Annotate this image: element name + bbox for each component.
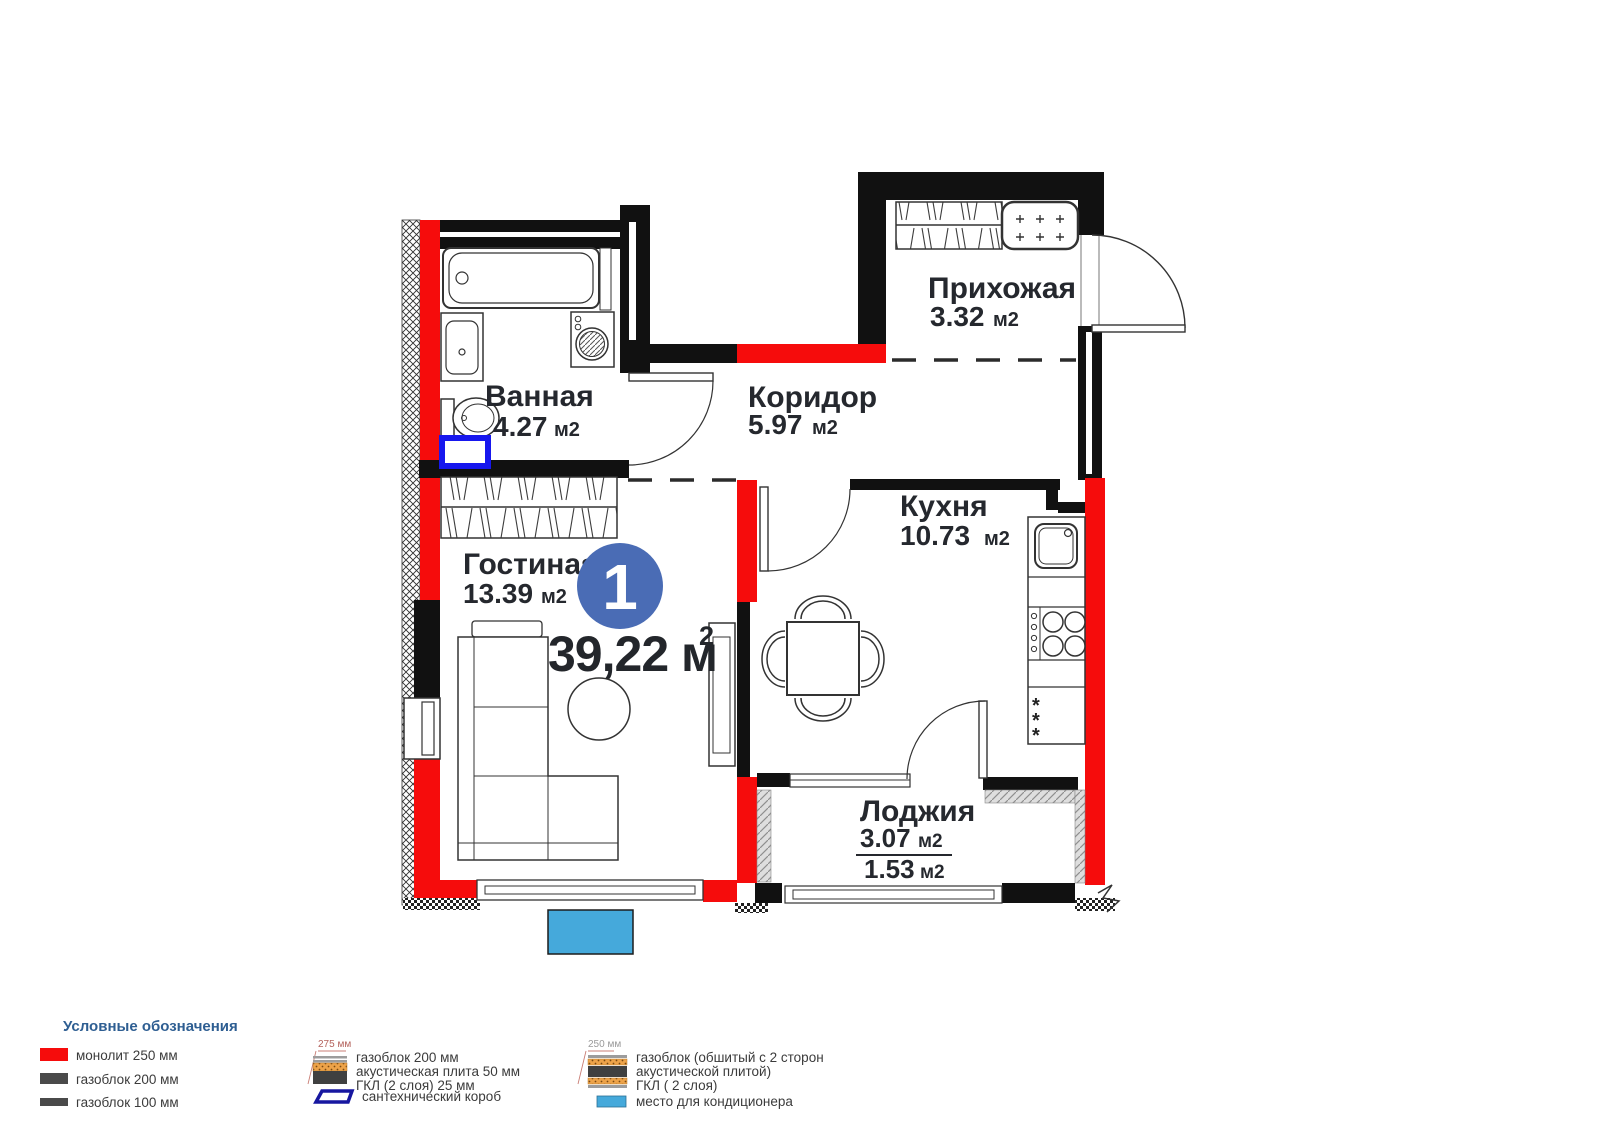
loggia-corner-right <box>1002 883 1075 903</box>
svg-text:акустической плитой): акустической плитой) <box>636 1064 771 1079</box>
wall275-swatch <box>313 1056 347 1084</box>
washing-machine-icon <box>571 312 614 367</box>
svg-text:м2: м2 <box>541 586 567 608</box>
svg-text:*: * <box>1032 725 1040 747</box>
svg-text:м2: м2 <box>920 862 945 883</box>
svg-text:м2: м2 <box>554 419 580 441</box>
svg-text:акустическая плита 50 мм: акустическая плита 50 мм <box>356 1064 520 1079</box>
svg-text:10.73: 10.73 <box>900 520 970 551</box>
svg-text:газоблок (обшитый с 2 сторон: газоблок (обшитый с 2 сторон <box>636 1050 824 1065</box>
legend: Условные обозначения монолит 250 мм газо… <box>40 1018 824 1110</box>
svg-text:13.39: 13.39 <box>463 578 533 609</box>
plumbing-box-swatch <box>316 1091 352 1102</box>
kitchen-top-wall-step-v <box>1046 490 1058 510</box>
svg-text:3.07: 3.07 <box>860 823 911 853</box>
svg-text:место для кондиционера: место для кондиционера <box>636 1094 793 1109</box>
chair <box>795 596 851 619</box>
living-wardrobe <box>441 477 617 538</box>
monolith-wall-right <box>1085 478 1105 885</box>
kitchen-sink <box>1035 524 1077 568</box>
room-kitchen-label: Кухня 10.73 м2 <box>900 490 1010 551</box>
hallway-wardrobe <box>896 202 1002 249</box>
partition-red-top <box>737 480 757 602</box>
svg-text:5.97: 5.97 <box>748 409 803 440</box>
svg-text:4.27: 4.27 <box>493 411 548 442</box>
bathroom-sink <box>441 313 483 381</box>
room-hallway-label: Прихожая 3.32 м2 <box>928 272 1076 332</box>
legend-title: Условные обозначения <box>63 1018 238 1035</box>
legend-item-plumbing-box: сантехнический короб <box>316 1089 501 1104</box>
loggia-window <box>785 886 1002 903</box>
bathroom-top-wall-outer <box>440 220 630 232</box>
gasblock200-swatch <box>40 1073 68 1084</box>
partition-black <box>737 602 750 777</box>
living-side-window <box>404 698 440 759</box>
legend-item-gasblock100: газоблок 100 мм <box>40 1095 179 1110</box>
entry-wall-top <box>1078 200 1104 235</box>
coffee-table <box>568 678 630 740</box>
corridor-top-wall-black <box>640 344 737 363</box>
exterior-checker-band <box>403 898 480 910</box>
bathroom-door <box>629 373 713 465</box>
wall250-swatch <box>588 1055 627 1088</box>
svg-text:3.32: 3.32 <box>930 301 985 332</box>
room-bathroom-label: Ванная 4.27 м2 <box>485 380 594 442</box>
svg-text:м2: м2 <box>993 309 1019 331</box>
svg-text:2: 2 <box>699 621 714 651</box>
hallway-furniture <box>896 202 1078 249</box>
svg-text:ГКЛ ( 2 слоя): ГКЛ ( 2 слоя) <box>636 1078 717 1093</box>
svg-text:м2: м2 <box>918 831 943 852</box>
loggia-wall-hatch <box>1075 790 1085 883</box>
exterior-checker-band <box>735 903 768 913</box>
legend-item-gasblock200: газоблок 200 мм <box>40 1072 179 1087</box>
svg-text:Кухня: Кухня <box>900 490 988 523</box>
kitchen-door <box>760 487 850 571</box>
hallway-top-wall <box>858 172 1104 200</box>
svg-text:Ванная: Ванная <box>485 380 594 413</box>
monolith-swatch <box>40 1048 68 1061</box>
legend-item-wall250: 250 мм газоблок (обшитый с 2 сторон акус… <box>578 1039 824 1093</box>
svg-text:м2: м2 <box>984 528 1010 550</box>
monolith-wall-left-top <box>420 220 440 600</box>
gasblock100-swatch <box>40 1098 68 1106</box>
svg-text:250 мм: 250 мм <box>588 1039 621 1050</box>
wall-channel <box>629 222 636 340</box>
plumbing-box <box>442 438 488 466</box>
floorplan-page: * * * Прихожая 3.32 м2 Коридор 5.97 м2 В… <box>0 0 1600 1131</box>
svg-text:м2: м2 <box>812 417 838 439</box>
kitchen-furniture: * * * <box>762 517 1085 747</box>
loggia-door <box>907 701 987 779</box>
monolith-bottom-right <box>703 880 737 902</box>
loggia-wall-hatch <box>757 790 771 882</box>
shoe-cabinet <box>1002 202 1078 249</box>
entrance-door <box>1092 235 1185 332</box>
svg-text:газоблок 200 мм: газоблок 200 мм <box>356 1050 459 1065</box>
kitchen-counter: * * * <box>1028 517 1085 747</box>
chair <box>795 698 851 721</box>
monolith-wall-left-bottom <box>414 759 440 902</box>
living-main-window <box>477 880 703 900</box>
svg-text:39,22 м: 39,22 м <box>548 626 717 682</box>
loggia-top-wall-right <box>983 777 1078 790</box>
fridge: * * * <box>1032 695 1040 747</box>
ac-unit-place <box>548 910 633 954</box>
unit-badge: 1 <box>577 543 663 629</box>
loggia-wall-hatch <box>985 790 1075 803</box>
svg-text:1.53: 1.53 <box>864 854 915 884</box>
dining-table <box>762 596 884 721</box>
svg-text:монолит 250 мм: монолит 250 мм <box>76 1048 178 1063</box>
floor-plan-canvas: * * * Прихожая 3.32 м2 Коридор 5.97 м2 В… <box>0 0 1600 1131</box>
room-corridor-label: Коридор 5.97 м2 <box>748 381 877 440</box>
partition-red-bottom <box>737 777 757 883</box>
hallway-left-wall-red <box>858 344 886 363</box>
loggia-corner-left <box>755 883 782 903</box>
badge-number: 1 <box>602 551 638 623</box>
chair <box>861 631 884 687</box>
svg-text:газоблок 200 мм: газоблок 200 мм <box>76 1072 179 1087</box>
loggia-top-wall-left <box>757 773 790 787</box>
exterior-checker-band <box>1075 898 1115 911</box>
hallway-left-wall <box>858 172 886 344</box>
room-loggia-label: Лоджия 3.07 м2 1.53 м2 <box>856 795 975 884</box>
legend-item-monolith: монолит 250 мм <box>40 1048 178 1063</box>
svg-text:сантехнический короб: сантехнический короб <box>362 1089 501 1104</box>
kitchen-top-wall <box>850 479 1060 490</box>
total-area-label: 39,22 м 2 <box>548 621 717 682</box>
svg-text:275 мм: 275 мм <box>318 1039 351 1050</box>
kitchen-top-wall-step-h <box>1058 502 1085 513</box>
gasblock-wall-left <box>414 600 440 698</box>
chair <box>762 631 785 687</box>
legend-item-wall275: 275 мм газоблок 200 мм акустическая плит… <box>308 1039 520 1093</box>
legend-item-ac: место для кондиционера <box>597 1094 793 1109</box>
svg-text:газоблок 100 мм: газоблок 100 мм <box>76 1095 179 1110</box>
bathtub <box>443 248 611 310</box>
ac-swatch <box>597 1096 626 1107</box>
kitchen-loggia-window <box>790 774 910 787</box>
wall-channel <box>1086 332 1092 474</box>
